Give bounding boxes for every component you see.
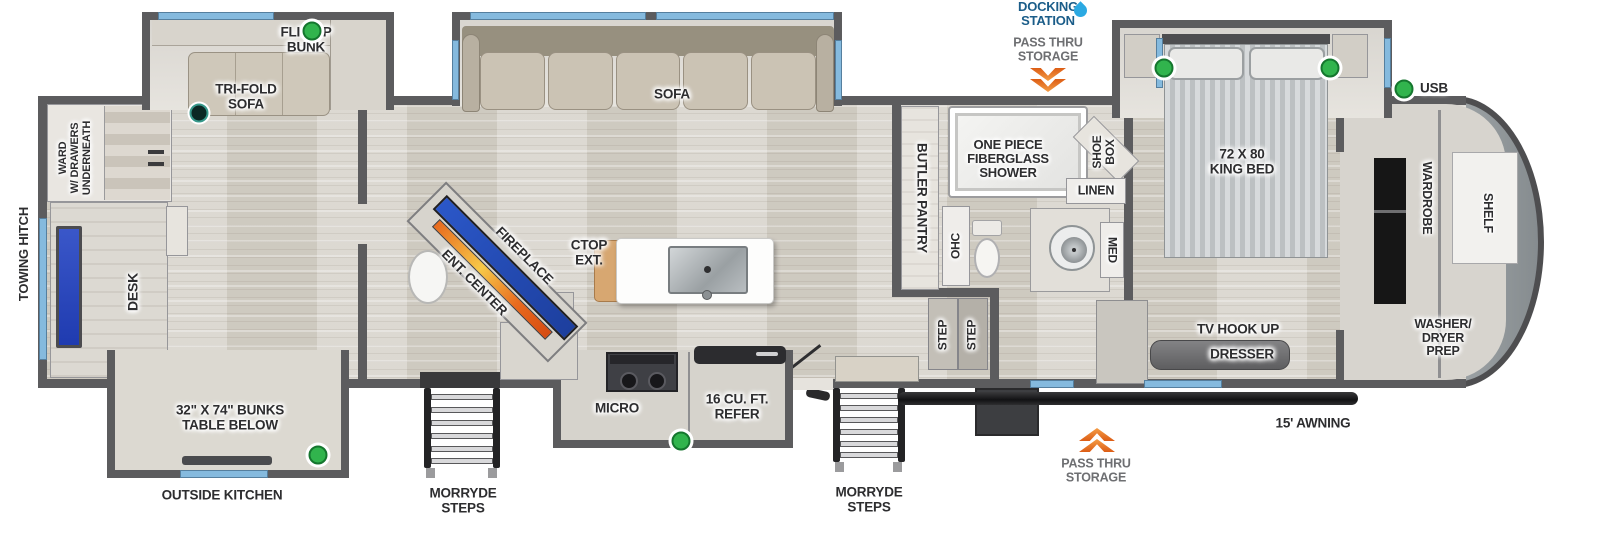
sofa-armrest (816, 34, 834, 112)
entry-counter (835, 356, 919, 382)
linen-label: LINEN (1078, 184, 1115, 198)
sofa-window (470, 12, 646, 20)
bed-window (1384, 38, 1391, 88)
step-label: STEP (937, 320, 950, 351)
wardrobe-label: WARDROBE (1419, 162, 1433, 235)
desk-label: DESK (125, 273, 140, 311)
pillow (1249, 47, 1325, 80)
desk-drawers (166, 206, 188, 256)
steps-wall (990, 290, 999, 388)
ward-label: WARD W/ DRAWERS UNDERNEATH (58, 121, 94, 195)
arrow-up-icon (1079, 428, 1115, 454)
morryde-steps-label: MORRYDE STEPS (835, 485, 902, 514)
med-label: MED (1106, 237, 1119, 263)
sink-drain (1072, 248, 1076, 252)
rear-room-wall (358, 244, 367, 379)
king-bed-label: 72 X 80 KING BED (1210, 147, 1274, 176)
pass-thru-bottom-label: PASS THRU STORAGE (1061, 458, 1131, 485)
toilet-tank (972, 220, 1002, 236)
ward-handle (148, 150, 164, 154)
step-foot (835, 462, 844, 472)
rear-slide-window (158, 12, 274, 20)
towing-hitch-label: TOWING HITCH (17, 207, 31, 301)
shower-label: ONE PIECE FIBERGLASS SHOWER (967, 138, 1049, 180)
tri-fold-sofa-label: TRI-FOLD SOFA (215, 82, 276, 111)
shoe-box-label: SHOE BOX (1091, 135, 1117, 168)
pillow (1168, 47, 1244, 80)
butler-pantry-label: BUTLER PANTRY (914, 143, 929, 253)
toilet-bowl (974, 238, 1000, 278)
light-dot (1155, 59, 1174, 78)
bedroom-entry-cabinet (1096, 300, 1148, 384)
outside-kitchen-label: OUTSIDE KITCHEN (162, 489, 283, 504)
bunk-latch (182, 456, 272, 465)
rear-window (39, 218, 47, 360)
docking-station-label: DOCKING STATION (1018, 0, 1078, 28)
ohc-label: OHC (950, 233, 963, 259)
micro-refer-divider (688, 352, 690, 440)
wardrobe-shelf-line (1374, 210, 1406, 213)
dresser-label: DRESSER (1210, 348, 1274, 363)
washer-dryer-label: WASHER/ DRYER PREP (1415, 318, 1472, 359)
light-dot (303, 22, 322, 41)
morryde-steps-rear (424, 388, 500, 478)
sofa-side-window (452, 40, 459, 100)
step-label: STEP (966, 320, 979, 351)
sofa-cushions (480, 52, 816, 110)
sofa-label: SOFA (654, 88, 690, 103)
pantry-wall (892, 104, 901, 292)
sink-drain (704, 266, 711, 273)
tv-hook-up-label: TV HOOK UP (1197, 323, 1279, 338)
range-panel (610, 355, 674, 364)
entry-door-gap (793, 378, 833, 390)
light-dot (672, 432, 691, 451)
bedroom-window (1030, 380, 1074, 388)
bed-head-rail (1162, 34, 1330, 44)
sofa-window (656, 12, 834, 20)
refer-label: 16 CU. FT. REFER (706, 392, 769, 421)
arrow-down-icon (1030, 68, 1066, 94)
ctop-ext-label: CTOP EXT. (571, 238, 607, 267)
awning-label: 15' AWNING (1276, 417, 1351, 432)
refer-handle (756, 352, 778, 356)
light-dot (309, 446, 328, 465)
bedroom-window (1144, 380, 1222, 388)
refer-top (694, 346, 786, 364)
shelf-label: SHELF (1480, 193, 1494, 233)
doorway-rear (420, 372, 500, 388)
wardrobe-opening (1374, 158, 1406, 304)
bunks-label: 32" X 74" BUNKS TABLE BELOW (176, 403, 284, 432)
pass-thru-top-label: PASS THRU STORAGE (1013, 37, 1083, 64)
morryde-steps-main (833, 388, 905, 470)
desk-monitor (56, 226, 82, 348)
bath-bedroom-wall (1124, 104, 1133, 304)
sink-faucet (702, 290, 712, 300)
rear-room-wall (358, 104, 367, 204)
light-dot (1321, 59, 1340, 78)
morryde-steps-label: MORRYDE STEPS (429, 486, 496, 515)
usb-dot (1395, 80, 1414, 99)
ward-handle (148, 162, 164, 166)
flip-up-bunk-panel (330, 20, 386, 110)
bunks-window (180, 470, 268, 478)
sofa-side-window (835, 40, 842, 100)
closet-wall (1336, 330, 1344, 380)
sofa-armrest (462, 34, 480, 112)
step-foot (893, 462, 902, 472)
burner (648, 372, 666, 390)
step-foot (488, 468, 497, 478)
burner (620, 372, 638, 390)
range-cooktop (606, 352, 678, 392)
rv-floorplan: DOCKING STATION PASS THRU STORAGE WARD W… (0, 0, 1600, 538)
speaker-dot (190, 104, 209, 123)
usb-label: USB (1420, 82, 1448, 97)
vanity-sink (1049, 225, 1095, 271)
micro-label: MICRO (595, 402, 639, 417)
awning-bar (898, 392, 1358, 405)
step-foot (426, 468, 435, 478)
